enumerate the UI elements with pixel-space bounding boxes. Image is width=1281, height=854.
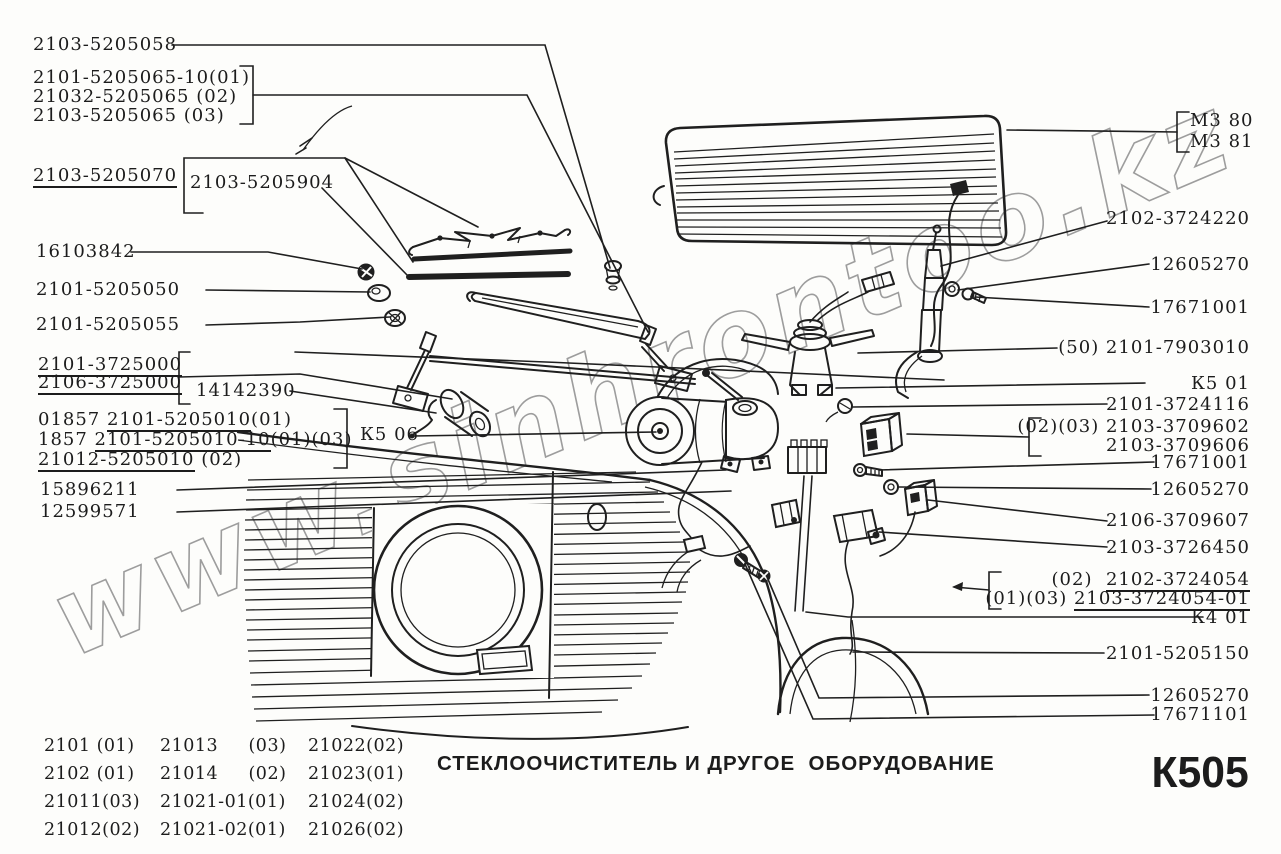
switch-3709607 (905, 480, 937, 515)
part-label-2101-3724116: 2101-3724116 (1106, 394, 1250, 415)
fender-grommet (588, 504, 606, 530)
ref-label-k5-06: К5 06 (360, 424, 419, 445)
screw-17671001 (854, 464, 882, 476)
part-label-2103-5205065: 2103-5205065 (03) (33, 105, 225, 126)
part-label-16103842: 16103842 (36, 241, 136, 262)
ref-label-m3-80: М3 80 (1190, 110, 1254, 131)
table-row: 2101 (01)21013 (03)21022(02) (44, 736, 404, 764)
part-label-2103-5205904: 2103-5205904 (190, 172, 334, 193)
part-label-2101-5205055: 2101-5205055 (36, 314, 180, 335)
part-label-2101-5205010: 01857 2101-5205010(01) (38, 409, 292, 430)
part-label-2103-5205070: 2103-5205070 (33, 165, 177, 186)
model-variant-table: 2101 (01)21013 (03)21022(02) 2102 (01)21… (44, 736, 404, 848)
car-front-drawing (238, 432, 928, 739)
table-row: 21011(03)21021-01(01)21024(02) (44, 792, 404, 820)
part-label-2101-5205065-10: 2101-5205065-10(01) (33, 67, 250, 88)
wiper-rubber-strip (409, 274, 568, 277)
part-label-12605270-3: 12605270 (1150, 685, 1250, 706)
grille-badge (477, 646, 532, 674)
part-label-2106-3725000: 2106-3725000 (38, 372, 182, 393)
part-label-21032-5205065: 21032-5205065 (02) (33, 86, 237, 107)
page-code: К505 (1152, 748, 1249, 798)
wiper-fasteners-drawing (358, 264, 406, 327)
part-label-2103-3724054-01: (01)(03) 2103-3724054-01 (985, 588, 1250, 609)
page-title: СТЕКЛООЧИСТИТЕЛЬ И ДРУГОЕ ОБОРУДОВАНИЕ (437, 752, 995, 776)
table-row: 21012(02)21021-02(01)21026(02) (44, 820, 404, 848)
part-label-2103-5205058: 2103-5205058 (33, 34, 177, 55)
harness-drawing (679, 399, 937, 654)
wiper-rubber-strip (414, 251, 570, 259)
part-label-2101-5205050: 2101-5205050 (36, 279, 180, 300)
connector-block (772, 500, 800, 527)
part-label-2102-3724054: (02) 2102-3724054 (1052, 569, 1250, 590)
part-label-2103-3709602: (02)(03) 2103-3709602 (1017, 416, 1250, 437)
part-label-14142390: 14142390 (196, 380, 296, 401)
part-label-21012-5205010: 21012-5205010 (02) (38, 449, 242, 470)
table-row: 2102 (01)21014 (02)21023(01) (44, 764, 404, 792)
part-label-17671101: 17671101 (1150, 704, 1250, 725)
ref-label-k4-01: К4 01 (1191, 607, 1250, 628)
part-label-2102-3724220: 2102-3724220 (1106, 208, 1250, 229)
rocker-switch-3709602 (861, 413, 902, 456)
washer-12605270 (884, 480, 898, 494)
part-label-2101-5205150: 2101-5205150 (1106, 643, 1250, 664)
part-label-2106-3709607: 2106-3709607 (1106, 510, 1250, 531)
part-label-12605270-2: 12605270 (1150, 479, 1250, 500)
part-label-17671001: 17671001 (1150, 297, 1250, 318)
catalog-page: www.sinhrontoo.kz (0, 0, 1281, 854)
part-label-12605270: 12605270 (1150, 254, 1250, 275)
part-label-12599571: 12599571 (40, 501, 140, 522)
part-label-17671001-2: 17671001 (1150, 452, 1250, 473)
part-label-15896211: 15896211 (40, 479, 140, 500)
ref-label-k5-01: К5 01 (1191, 373, 1250, 394)
part-label-2101-7903010: (50) 2101-7903010 (1058, 337, 1250, 358)
ref-label-m3-81: М3 81 (1190, 131, 1254, 152)
relay-3726450 (834, 510, 885, 544)
part-label-2101-5205010-10: 1857 2101-5205010-10(01)(03) (38, 429, 352, 450)
part-label-2103-3726450: 2103-3726450 (1106, 537, 1250, 558)
